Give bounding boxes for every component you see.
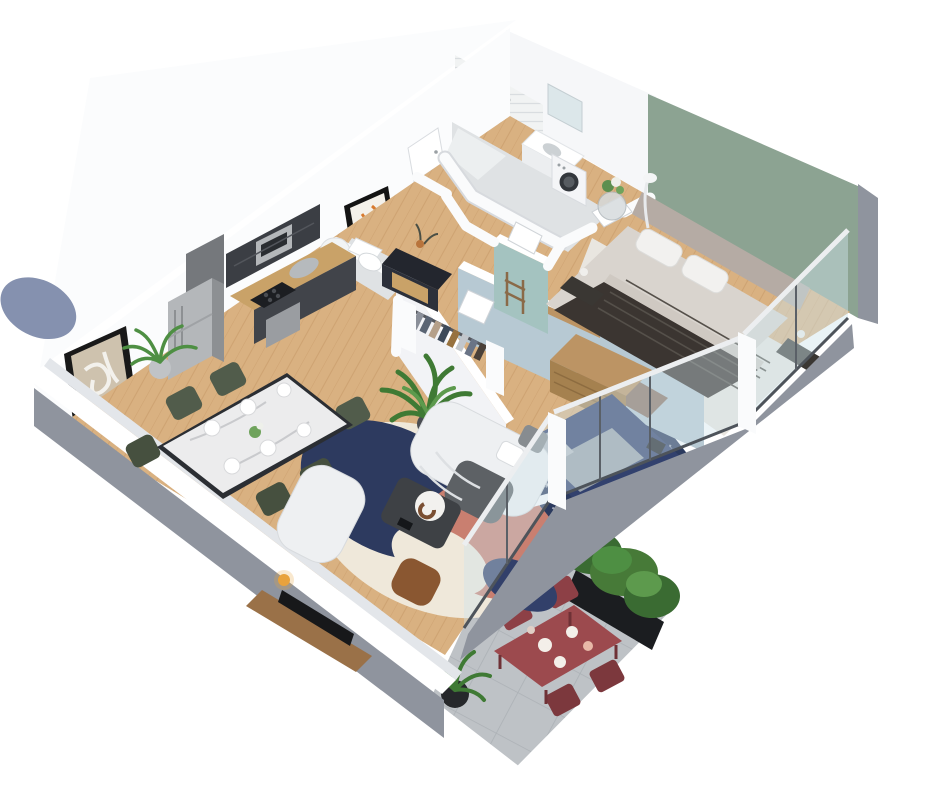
closet-panel-right xyxy=(486,340,504,396)
closet-west-wall xyxy=(396,300,398,352)
closet-panel-left xyxy=(398,298,416,354)
facade-pier xyxy=(548,412,566,510)
facade-pier xyxy=(738,332,756,434)
teapot xyxy=(583,641,593,651)
right-corner-outer-wall xyxy=(858,184,878,324)
floorplan-svg xyxy=(0,0,941,800)
plate xyxy=(538,638,552,652)
plate xyxy=(554,656,566,668)
lamp xyxy=(580,268,588,276)
plate xyxy=(566,626,578,638)
floorplan-render xyxy=(0,0,941,800)
cup xyxy=(527,626,535,634)
vase xyxy=(416,240,424,248)
